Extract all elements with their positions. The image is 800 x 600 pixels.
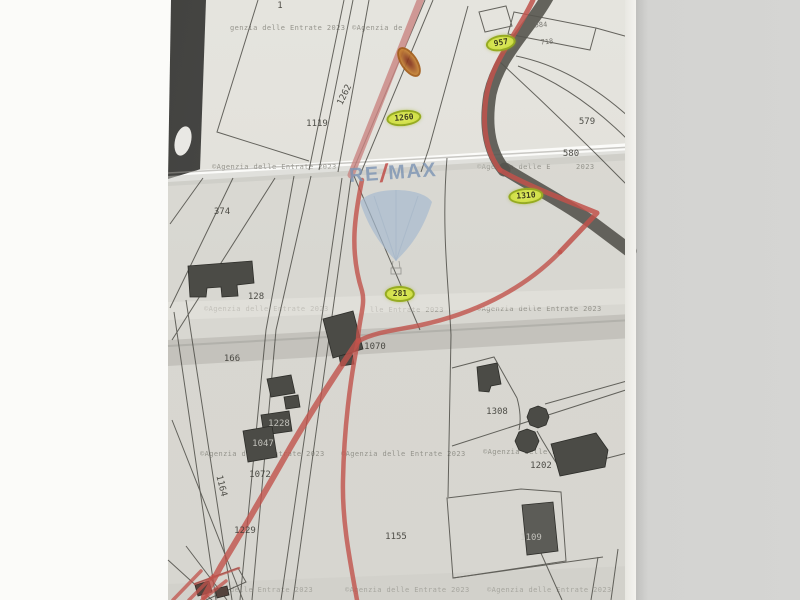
parcel-label: 718 [540, 37, 553, 46]
parcel-label: 1070 [364, 342, 386, 352]
remax-balloon-icon [350, 184, 442, 276]
remax-logo-max: MAX [388, 159, 438, 184]
building [188, 261, 254, 297]
parcel-label: 1228 [268, 419, 290, 429]
building [522, 502, 558, 555]
parcel-label: 584 [534, 21, 547, 30]
parcel-label: 1072 [249, 470, 271, 480]
building [527, 406, 549, 428]
parcel-label: 1155 [385, 532, 407, 542]
parcel-label: 1119 [306, 119, 328, 129]
red-road [351, 0, 422, 175]
parcel-label: 374 [214, 207, 230, 217]
parcel-label: 166 [224, 354, 240, 364]
building [515, 429, 539, 453]
parcel-label: 1 [277, 1, 282, 11]
parcel-label: 580 [563, 149, 579, 159]
parcel-label: 1308 [486, 407, 508, 417]
building [477, 363, 501, 392]
parcel-label: 1109 [520, 533, 542, 543]
building [267, 375, 295, 397]
building [551, 433, 608, 476]
parcel-label: 128 [248, 292, 264, 302]
paper-right-edge [625, 0, 636, 600]
parcel-label: 1229 [234, 526, 256, 536]
parcel-label: 579 [579, 117, 595, 127]
building [284, 395, 300, 409]
cadastral-map-photo: genzia delle Entrate 2023 ©Agenzia de ©A… [0, 0, 800, 600]
parcel-label: 1047 [252, 439, 274, 449]
parcel-label: 1202 [530, 461, 552, 471]
